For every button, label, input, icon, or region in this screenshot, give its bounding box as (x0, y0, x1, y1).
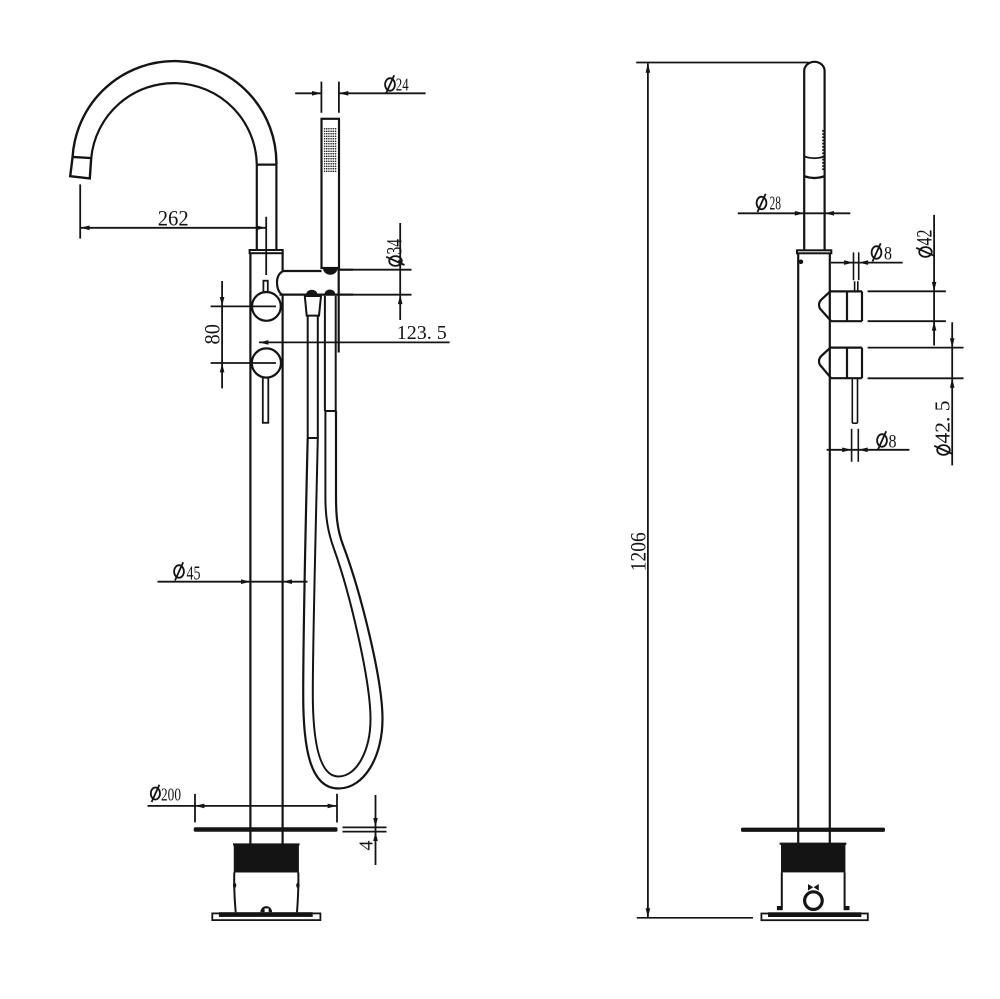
svg-text:123. 5: 123. 5 (397, 322, 447, 344)
svg-text:8: 8 (884, 244, 892, 265)
svg-text:45: 45 (187, 563, 201, 585)
svg-text:8: 8 (889, 432, 897, 453)
svg-text:1206: 1206 (625, 532, 650, 571)
svg-text:24: 24 (396, 75, 409, 95)
svg-text:80: 80 (200, 324, 225, 344)
svg-text:42: 42 (912, 230, 937, 246)
svg-text:42. 5: 42. 5 (931, 401, 955, 444)
svg-text:28: 28 (770, 193, 782, 215)
svg-text:262: 262 (158, 206, 189, 231)
svg-text:4: 4 (356, 841, 378, 851)
svg-text:34: 34 (382, 239, 407, 255)
svg-text:200: 200 (161, 784, 181, 804)
